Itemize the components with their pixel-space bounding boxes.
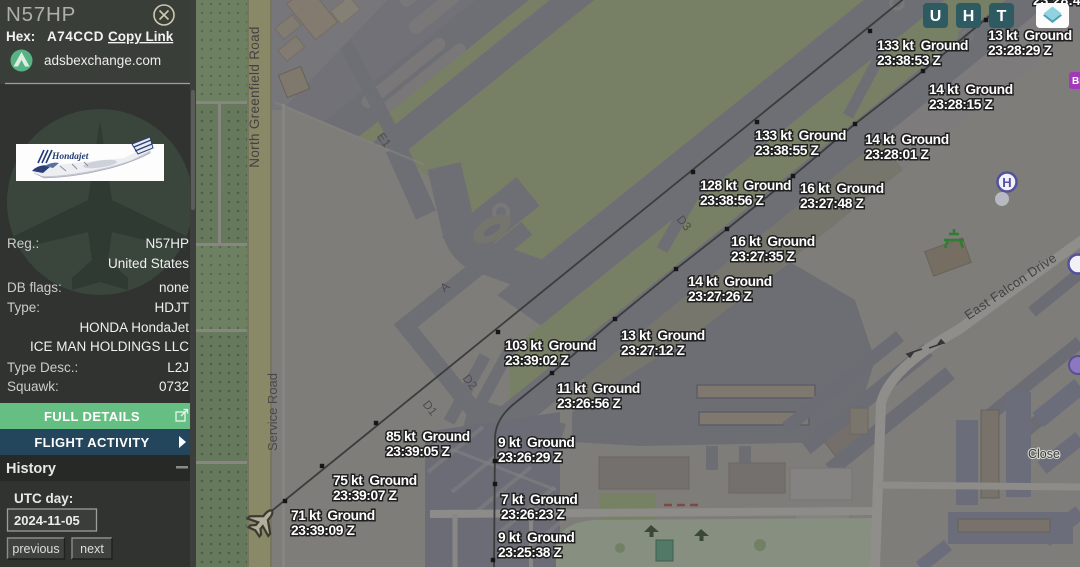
svg-text:9 kt Ground: 9 kt Ground: [498, 530, 574, 545]
svg-text:13 kt Ground: 13 kt Ground: [621, 328, 705, 343]
svg-text:23:26:56 Z: 23:26:56 Z: [557, 396, 621, 411]
svg-text:103 kt Ground: 103 kt Ground: [505, 338, 596, 353]
svg-text:Copy Link: Copy Link: [108, 29, 174, 44]
svg-text:United States: United States: [108, 256, 189, 271]
svg-text:BE: BE: [1072, 76, 1080, 87]
svg-text:16 kt Ground: 16 kt Ground: [731, 234, 815, 249]
svg-text:23:28:01 Z: 23:28:01 Z: [865, 147, 929, 162]
svg-text:9 kt Ground: 9 kt Ground: [498, 435, 574, 450]
svg-text:23:25:38 Z: 23:25:38 Z: [498, 545, 562, 560]
svg-text:133 kt Ground: 133 kt Ground: [755, 128, 846, 143]
svg-text:adsbexchange.com: adsbexchange.com: [44, 53, 161, 68]
svg-text:23:39:07 Z: 23:39:07 Z: [333, 488, 397, 503]
svg-text:Type:: Type:: [7, 300, 40, 315]
svg-text:Close: Close: [1028, 447, 1060, 461]
svg-text:85 kt Ground: 85 kt Ground: [386, 429, 470, 444]
svg-text:16 kt Ground: 16 kt Ground: [800, 181, 884, 196]
svg-text:Hex:: Hex:: [6, 29, 35, 44]
svg-text:none: none: [159, 280, 189, 295]
svg-text:FLIGHT ACTIVITY: FLIGHT ACTIVITY: [34, 435, 149, 450]
svg-text:T: T: [997, 8, 1007, 25]
svg-text:7 kt Ground: 7 kt Ground: [501, 492, 577, 507]
svg-text:HDJT: HDJT: [155, 300, 190, 315]
svg-text:U: U: [930, 8, 942, 25]
svg-text:23:39:05 Z: 23:39:05 Z: [386, 444, 450, 459]
svg-text:14 kt Ground: 14 kt Ground: [688, 274, 772, 289]
svg-text:23:27:35 Z: 23:27:35 Z: [731, 249, 795, 264]
svg-text:14 kt Ground: 14 kt Ground: [865, 132, 949, 147]
svg-text:133 kt Ground: 133 kt Ground: [877, 38, 968, 53]
svg-text:N57HP: N57HP: [145, 236, 189, 251]
svg-text:23:39:09 Z: 23:39:09 Z: [291, 523, 355, 538]
svg-text:previous: previous: [12, 542, 59, 556]
svg-text:23:39:02 Z: 23:39:02 Z: [505, 353, 569, 368]
svg-text:Hondajet: Hondajet: [51, 152, 89, 162]
svg-text:History: History: [6, 461, 56, 477]
svg-text:Type Desc.:: Type Desc.:: [7, 360, 78, 375]
svg-text:71 kt Ground: 71 kt Ground: [291, 508, 375, 523]
svg-text:N57HP: N57HP: [6, 3, 76, 26]
svg-text:H: H: [963, 8, 975, 25]
svg-text:Squawk:: Squawk:: [7, 379, 59, 394]
svg-text:ICE MAN HOLDINGS LLC: ICE MAN HOLDINGS LLC: [30, 339, 189, 354]
svg-text:23:27:12 Z: 23:27:12 Z: [621, 343, 685, 358]
svg-text:23:27:48 Z: 23:27:48 Z: [800, 196, 864, 211]
svg-text:HONDA HondaJet: HONDA HondaJet: [79, 320, 189, 335]
svg-text:11 kt Ground: 11 kt Ground: [557, 381, 640, 396]
svg-text:75 kt Ground: 75 kt Ground: [333, 473, 417, 488]
svg-text:23:26:23 Z: 23:26:23 Z: [501, 507, 565, 522]
svg-text:Reg.:: Reg.:: [7, 236, 39, 251]
svg-text:23:27:26 Z: 23:27:26 Z: [688, 289, 752, 304]
svg-text:14 kt Ground: 14 kt Ground: [929, 82, 1013, 97]
svg-text:23:38:53 Z: 23:38:53 Z: [877, 53, 941, 68]
svg-text:A74CCD: A74CCD: [47, 29, 104, 44]
svg-text:23:38:56 Z: 23:38:56 Z: [700, 193, 764, 208]
svg-text:23:38:55 Z: 23:38:55 Z: [755, 143, 819, 158]
svg-text:23:28:15 Z: 23:28:15 Z: [929, 97, 993, 112]
svg-text:H: H: [1002, 175, 1011, 190]
svg-text:FULL DETAILS: FULL DETAILS: [44, 409, 140, 424]
svg-text:0732: 0732: [159, 379, 189, 394]
svg-text:L2J: L2J: [167, 360, 189, 375]
svg-text:23:28:29 Z: 23:28:29 Z: [988, 43, 1052, 58]
svg-text:13 kt Ground: 13 kt Ground: [988, 28, 1072, 43]
svg-text:2024-11-05: 2024-11-05: [14, 513, 80, 528]
svg-text:DB flags:: DB flags:: [7, 280, 62, 295]
svg-text:UTC day:: UTC day:: [14, 491, 73, 506]
svg-text:next: next: [80, 542, 104, 556]
svg-text:23:26:29 Z: 23:26:29 Z: [498, 450, 562, 465]
svg-text:128 kt Ground: 128 kt Ground: [700, 178, 791, 193]
